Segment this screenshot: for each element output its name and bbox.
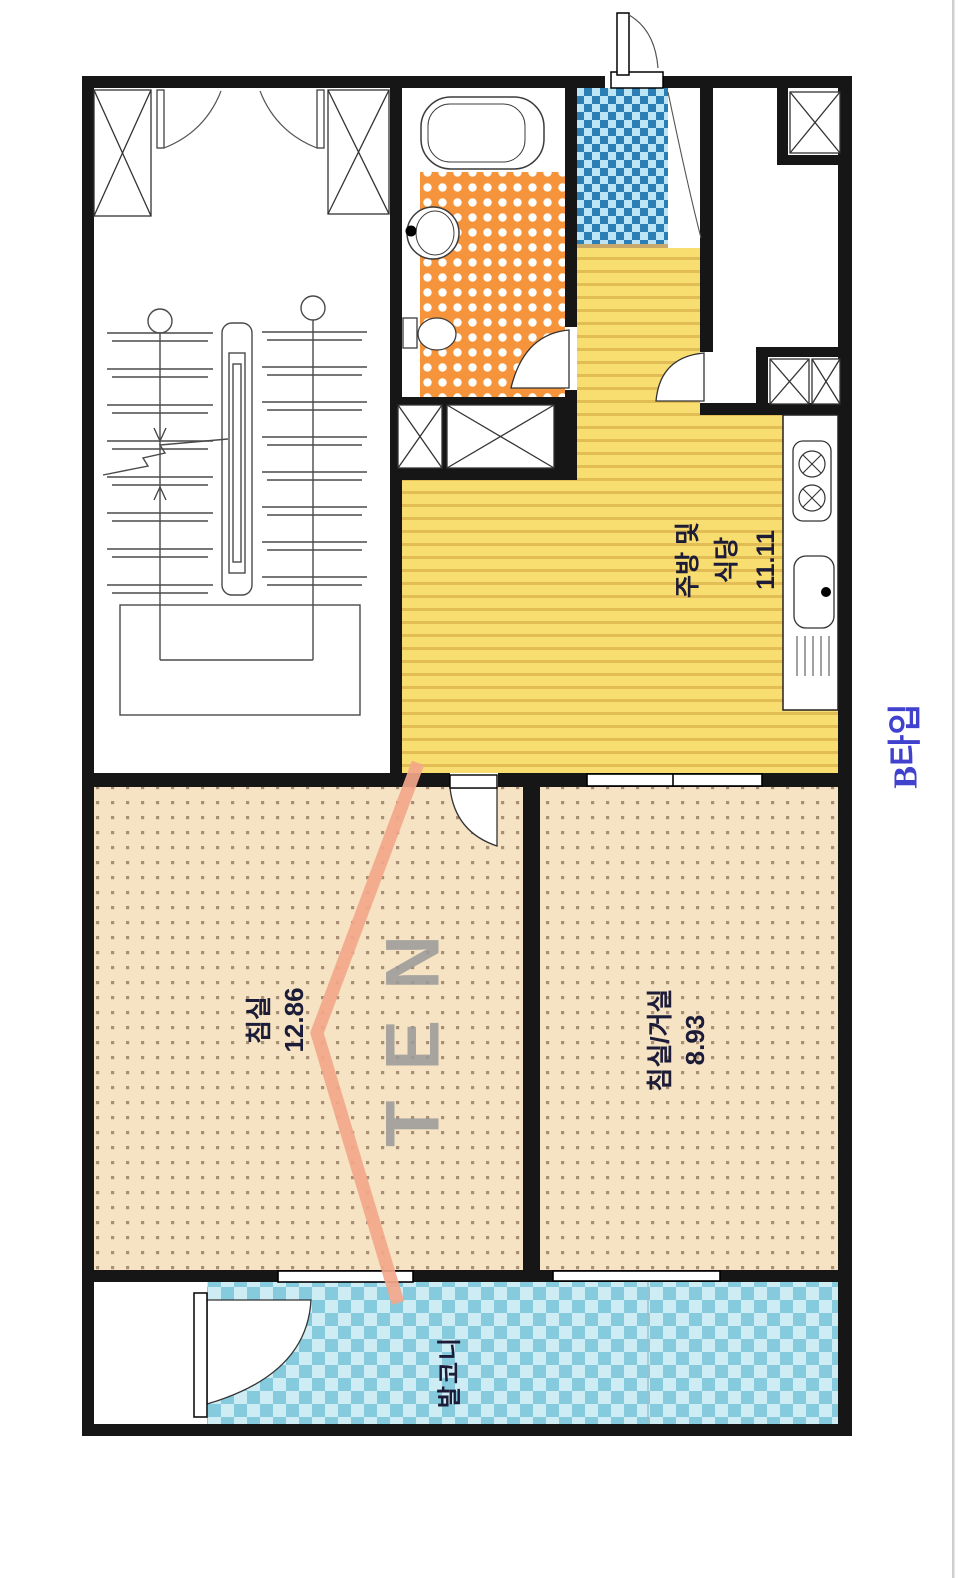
- bedroom2-name: 침실/거실: [643, 989, 678, 1092]
- wall-top-left: [82, 76, 605, 88]
- wall-bathroom-right-upper: [565, 80, 577, 327]
- closet-nook-left: [770, 359, 809, 404]
- bedroom1-door-leaf: [450, 775, 497, 788]
- floor-plan-drawing: [0, 0, 960, 1578]
- wall-utilityroom-left: [700, 88, 713, 352]
- front-door-swing-arc: [629, 15, 658, 68]
- stove-icon: [793, 441, 831, 521]
- balcony-label: 발코니: [430, 1336, 465, 1408]
- washbasin-faucet-dot: [406, 226, 417, 237]
- kitchen-floor-a: [577, 248, 700, 773]
- entry-inner-door-swing-line: [668, 92, 701, 238]
- bedroom1-area-value: 12.86: [277, 987, 312, 1052]
- wall-nook-top: [768, 347, 850, 357]
- front-door-leaf: [617, 13, 629, 75]
- stair-handrail-mid: [229, 353, 245, 573]
- door-leaf-right: [317, 90, 324, 148]
- wall-top-right: [663, 76, 850, 88]
- plan-type-title: B타입: [878, 703, 927, 788]
- bedroom1-name: 침실: [242, 987, 277, 1052]
- bedroom1-label: 침실 12.86: [242, 987, 312, 1052]
- closet-stairhall-left: [94, 90, 151, 216]
- stair-break-line: [103, 439, 228, 475]
- door-swing-arc-right: [260, 91, 317, 148]
- kitchen-dining-label: 주방 및 식당 11.11: [669, 522, 785, 598]
- kitchen-floor-d: [783, 710, 840, 773]
- kitchen-name-line1: 주방 및: [669, 522, 708, 598]
- wall-mid-horizontal-left: [82, 773, 450, 787]
- kitchen-sink-faucet-dot: [821, 587, 831, 597]
- kitchen-bedroom2-sliding-door: [587, 774, 762, 786]
- bedroom2-area-value: 8.93: [678, 989, 713, 1092]
- wall-bottom: [82, 1424, 852, 1436]
- stair-start-marker-left: [148, 309, 172, 333]
- wall-nook-left: [756, 347, 768, 403]
- wall-closet-tr-bottom: [777, 155, 850, 165]
- stair-path-lines: [160, 320, 313, 660]
- staircase: [103, 296, 367, 715]
- wall-balcony: [82, 1270, 850, 1282]
- kitchen-floor-b: [402, 480, 577, 773]
- wall-bedroom-divider: [523, 787, 540, 1270]
- kitchen-area-value: 11.11: [746, 522, 785, 598]
- door-swing-arc-left: [164, 91, 221, 148]
- entry-floor: [577, 88, 668, 246]
- floor-fills: [94, 88, 840, 1424]
- wall-left: [82, 76, 94, 1436]
- ten-logo-watermark: TEN: [370, 905, 457, 1177]
- balcony-door-leaf: [194, 1293, 207, 1417]
- closet-utilityroom-top: [790, 92, 840, 153]
- kitchen-counter: [783, 415, 838, 710]
- wall-closet-tr-left: [777, 88, 788, 165]
- stair-handrail-inner: [233, 364, 241, 562]
- door-leaf-left: [157, 90, 164, 148]
- stairhall-double-doors: [157, 90, 324, 148]
- closet-below-bathroom-small: [398, 405, 442, 468]
- bedroom2-window: [553, 1271, 720, 1281]
- closet-nook-right: [812, 359, 840, 404]
- closet-stairhall-right: [328, 90, 389, 214]
- closet-below-bathroom-large: [447, 405, 554, 468]
- toilet-tank: [403, 318, 417, 348]
- floor-plan-page: TEN 주방 및 식당 11.11 침실 12.86 침실/거실 8.93 발코…: [0, 0, 960, 1578]
- bathtub-icon: [421, 97, 544, 169]
- stair-start-marker-right: [301, 296, 325, 320]
- page-edge-line: [952, 0, 955, 1578]
- wall-right: [838, 76, 852, 1436]
- stair-treads-right: [262, 332, 367, 585]
- wall-utilityroom-bottom: [700, 403, 850, 415]
- kitchen-name-line2: 식당: [708, 522, 747, 598]
- toilet-bowl: [418, 318, 456, 350]
- bedroom2-label: 침실/거실 8.93: [643, 989, 713, 1092]
